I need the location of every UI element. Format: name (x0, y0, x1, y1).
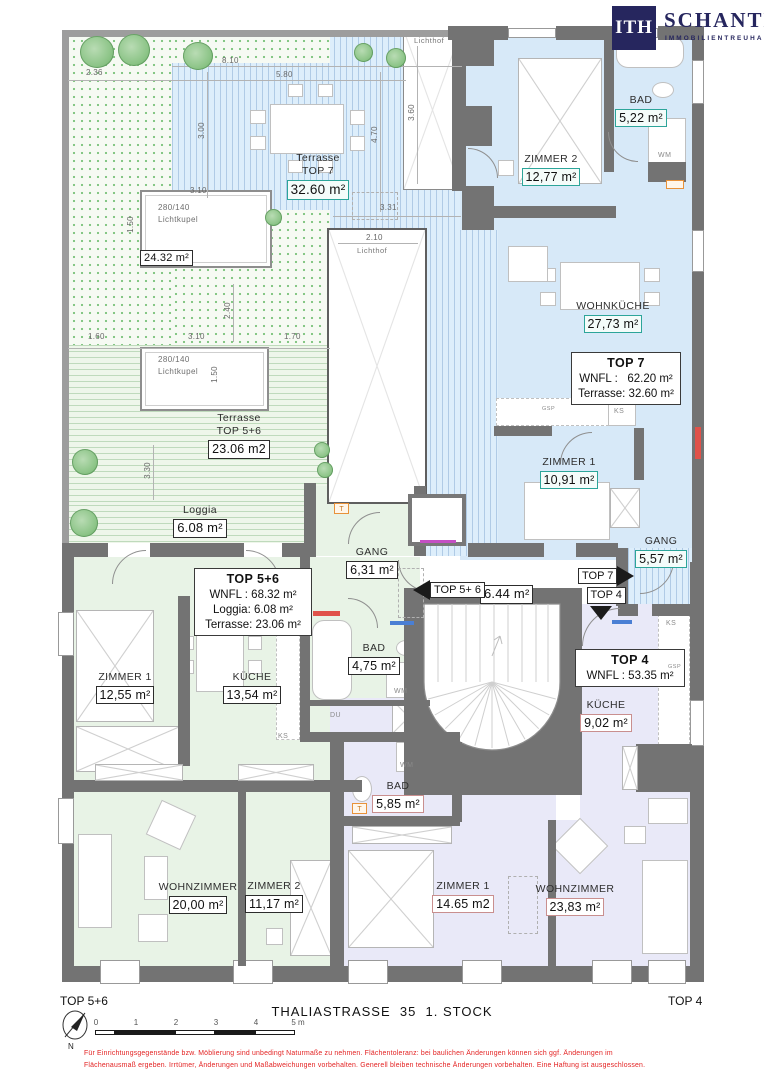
room-name: WOHNKÜCHE (553, 300, 673, 313)
dim-300: 3.00 (197, 122, 206, 139)
room-label-zimmer1-4: ZIMMER 1 14.65 m2 (408, 880, 518, 913)
room-name: ZIMMER 2 (496, 153, 606, 166)
wall-loggia-1 (62, 543, 108, 557)
terrace-chair (318, 84, 333, 97)
unit-info-top7: TOP 7 WNFL : 62.20 m² Terrasse: 32.60 m² (571, 352, 681, 405)
wall-gang7-entry-2 (652, 604, 692, 616)
sofa-wohnzimmer56 (78, 834, 112, 928)
ks-label-top7: KS (614, 408, 624, 415)
room-area: 4,75 m² (348, 657, 400, 675)
terrace-wall-left (62, 30, 69, 543)
room-label-wohnkueche7: WOHNKÜCHE 27,73 m² (553, 300, 673, 333)
room-label-gang7: GANG 5,57 m² (621, 535, 701, 568)
scale-bar: 0 1 2 3 4 5 m (95, 1018, 315, 1038)
dim-150b: 1.50 (210, 366, 219, 383)
dim-line (233, 284, 234, 342)
wall-pier-3 (462, 186, 494, 230)
room-name: GANG (621, 535, 701, 548)
dim-160: 1.60 (88, 332, 105, 341)
unit-wnfl: WNFL : 62.20 m² (576, 372, 676, 387)
dim-310b: 3.10 (188, 332, 205, 341)
dim-360: 3.60 (407, 104, 416, 121)
dim-470: 4.70 (370, 126, 379, 143)
room-name: BAD (334, 642, 414, 655)
unit-title: TOP 7 (607, 356, 645, 370)
dim-line (207, 72, 208, 198)
dim-240: 2.40 (223, 302, 232, 319)
dim-310a: 3.10 (190, 186, 207, 195)
scale-tick: 3 (206, 1018, 226, 1027)
door-mark-magenta (420, 540, 456, 543)
lichtkupel-lower-label: 280/140 Lichtkupel (158, 354, 198, 378)
tree (265, 209, 282, 226)
room-name: KÜCHE (207, 671, 297, 684)
lichthof-mid-shaft (327, 228, 427, 504)
room-name: BAD (358, 780, 438, 793)
wall-right-3 (692, 272, 704, 426)
wall-top-2 (556, 26, 614, 40)
room-area: 27,73 m² (584, 315, 643, 333)
scale-tick: 4 (246, 1018, 266, 1027)
room-area: 23.06 m2 (208, 440, 270, 458)
bed-zimmer1-top7 (524, 482, 610, 540)
unit-title: TOP 5+6 (227, 572, 280, 586)
kupel-name: Lichtkupel (158, 366, 198, 378)
room-area: 32.60 m² (287, 180, 350, 200)
room-name: ZIMMER 1 (70, 671, 180, 684)
nightstand (266, 928, 283, 945)
room-label-gang56: GANG 6,31 m² (332, 546, 412, 579)
room-sub: TOP 5+6 (179, 425, 299, 438)
dim-line (380, 72, 381, 212)
arrow-right-icon (617, 566, 634, 586)
kupel-size: 280/140 (158, 354, 198, 366)
heater-marker (666, 180, 684, 189)
room-name: Terrasse (179, 412, 299, 425)
scale-segment (115, 1030, 135, 1035)
scale-tick: 1 (126, 1018, 146, 1027)
wall-zimmer2-bottom (494, 206, 616, 218)
room-sub: TOP 7 (258, 165, 378, 178)
dim-330: 3.30 (143, 462, 152, 479)
wall-corridor-top-2 (576, 543, 618, 557)
room-name: KÜCHE (561, 699, 651, 712)
window (592, 960, 632, 984)
terrace-chair (350, 110, 365, 125)
tree (70, 509, 98, 537)
elevator-shaft (408, 494, 466, 546)
room-area: 6,31 m² (346, 561, 398, 579)
wall-kitchen7 (494, 426, 552, 436)
du-label-top4: DU (330, 712, 341, 719)
tree (314, 442, 330, 458)
unit-wnfl: WNFL : 68.32 m² (199, 588, 307, 603)
tree (386, 48, 406, 68)
wall-pier-2 (464, 106, 492, 146)
arrow-down-icon (590, 606, 612, 620)
closet-zimmer1-top4 (352, 826, 452, 844)
room-label-bad56: BAD 4,75 m² (334, 642, 414, 675)
room-area: 5,57 m² (635, 550, 687, 568)
terrace-chair (250, 110, 266, 124)
tree (317, 462, 333, 478)
wall-bad4-top (300, 732, 460, 742)
room-area: 5,85 m² (372, 795, 424, 813)
gsp-label-top7: GSP (542, 406, 555, 412)
room-name: ZIMMER 1 (408, 880, 518, 893)
dim-331: 3.31 (380, 203, 397, 212)
room-label-zimmer2-56: ZIMMER 2 11,17 m² (229, 880, 319, 913)
room-name: Terrasse (258, 152, 378, 165)
room-area: 10,91 m² (540, 471, 599, 489)
room-label-zimmer1-56: ZIMMER 1 12,55 m² (70, 671, 180, 704)
wall-right-6 (690, 746, 704, 982)
room-label-bad4: BAD 5,85 m² (358, 780, 438, 813)
dim-line (417, 46, 418, 184)
unit-loggia: Loggia: 6.08 m² (199, 603, 307, 618)
dim-150a: 1.50 (126, 216, 135, 233)
window (692, 60, 704, 104)
wall-bad7-block (648, 162, 686, 182)
room-area: 6.08 m² (173, 519, 226, 538)
room-name: GANG (332, 546, 412, 559)
window (348, 960, 388, 984)
terrace-table (270, 104, 344, 154)
room-area: 9,02 m² (580, 714, 632, 732)
lichthof-top-label: Lichthof (414, 36, 444, 45)
wall-right-5 (690, 562, 704, 700)
unit-terrasse: Terrasse: 23.06 m² (199, 618, 307, 633)
bed-zimmer1-top56 (76, 610, 154, 722)
technic-marker: T (334, 503, 349, 514)
room-area: 12,55 m² (96, 686, 155, 704)
dim-170: 1.70 (284, 332, 301, 341)
dim-580: 5.80 (276, 70, 293, 79)
dim-line-210 (338, 243, 418, 244)
wall-wz56-z256 (238, 792, 246, 966)
tree (183, 42, 213, 70)
unit-terrasse: Terrasse: 32.60 m² (576, 387, 676, 402)
dim-210: 2.10 (366, 233, 383, 242)
room-area: 14.65 m2 (432, 895, 494, 913)
dim-line (68, 80, 172, 81)
closet-in-wall-2 (238, 764, 314, 781)
tree (354, 43, 373, 62)
plan-title: THALIASTRASSE 35 1. STOCK (0, 1004, 764, 1019)
tree (80, 36, 114, 68)
terrace-wall-top (62, 30, 464, 37)
tree (118, 34, 150, 66)
lichtkupel-upper-label: 280/140 Lichtkupel (158, 202, 198, 226)
closet-in-wall-1 (95, 764, 183, 781)
side-table-top4 (624, 826, 646, 844)
wall-unit-top4 (642, 860, 688, 954)
disclaimer-text: Für Einrichtungsgegenstände bzw. Möblier… (84, 1048, 724, 1073)
wall-du-top (304, 700, 430, 706)
scale-segment (175, 1030, 215, 1035)
wall-chimney-top4 (636, 744, 692, 792)
arrow-left-icon (413, 580, 430, 600)
wm-label-top4: WM (400, 762, 413, 769)
room-name: BAD (601, 94, 681, 107)
sideboard (138, 914, 168, 942)
scale-segment (135, 1030, 175, 1035)
sideboard-top4 (648, 798, 688, 824)
window (508, 28, 556, 38)
room-area: 5,22 m² (615, 109, 667, 127)
wall-zimmer1-4-top (334, 816, 460, 826)
wall-corridor-top-1 (468, 543, 544, 557)
lichthof-mid-label: Lichthof (357, 246, 387, 255)
dim-810: 8.10 (222, 56, 239, 65)
door-mark-red2 (313, 611, 340, 616)
door-arc (112, 550, 146, 584)
ks-label-top56: KS (278, 733, 288, 740)
scale-segment (215, 1030, 255, 1035)
ith-logo-icon: ITH (612, 6, 656, 50)
stair-hall-area: 6.44 m² (480, 583, 533, 604)
terrace-chair (250, 136, 266, 150)
wm-label-top7: WM (658, 152, 671, 159)
wall-top56-top4 (330, 740, 344, 966)
scale-segment (255, 1030, 295, 1035)
room-area: 13,54 m² (223, 686, 282, 704)
kupel-area-box: 24.32 m² (140, 250, 193, 266)
door-mark-blue (390, 621, 414, 625)
kupel-size: 280/140 (158, 202, 198, 214)
room-area: 12,77 m² (522, 168, 581, 186)
room-area: 23,83 m² (546, 898, 605, 916)
door-mark-red (695, 427, 701, 459)
sideboard (508, 246, 548, 282)
terrace-chair (288, 84, 303, 97)
wall-vestibule-left (304, 483, 316, 557)
room-label-terrasse56: Terrasse TOP 5+6 23.06 m2 (179, 412, 299, 459)
room-label-kueche56: KÜCHE 13,54 m² (207, 671, 297, 704)
window (58, 798, 74, 844)
kupel-name: Lichtkupel (158, 214, 198, 226)
dim-line (172, 66, 462, 67)
ks-label-top4: KS (666, 620, 676, 627)
unit-wnfl: WNFL : 53.35 m² (580, 669, 680, 684)
room-label-kueche4: KÜCHE 9,02 m² (561, 699, 651, 732)
room-label-loggia: Loggia 6.08 m² (150, 504, 250, 538)
room-name: ZIMMER 1 (514, 456, 624, 469)
nav-label-top4: TOP 4 (587, 587, 626, 604)
scale-segment (95, 1030, 115, 1035)
chimney-shaft (622, 746, 638, 790)
wall-pier-1 (462, 30, 494, 66)
brand-subtitle: IMMOBILIENTREUHAND (665, 35, 764, 42)
dim-line (68, 348, 330, 349)
dim-line (153, 445, 154, 500)
room-label-bad7: BAD 5,22 m² (601, 94, 681, 127)
window (690, 700, 704, 746)
room-area: 11,17 m² (245, 895, 303, 913)
window (462, 960, 502, 984)
t-label: T (339, 506, 343, 513)
room-label-terrasse7: Terrasse TOP 7 32.60 m² (258, 152, 378, 200)
wall-bad4-right (452, 742, 462, 822)
spiral-staircase (410, 596, 574, 768)
stair-hall-area-box: 6.44 m² (480, 585, 533, 604)
unit-title: TOP 4 (611, 653, 649, 667)
window (100, 960, 140, 984)
dim-line (333, 216, 461, 217)
wall-loggia-2 (150, 543, 244, 557)
tree (72, 449, 98, 475)
window (692, 230, 704, 272)
brand-name: SCHANTL (664, 8, 764, 33)
window (58, 612, 74, 656)
closet-gang7 (610, 488, 640, 528)
scale-tick: 5 m (288, 1018, 308, 1027)
nav-arrow-top56: TOP 5+ 6 (413, 580, 485, 600)
room-label-wohnzimmer4: WOHNZIMMER 23,83 m² (515, 883, 635, 916)
chair (248, 636, 262, 650)
room-label-zimmer2-7: ZIMMER 2 12,77 m² (496, 153, 606, 186)
unit-info-top56: TOP 5+6 WNFL : 68.32 m² Loggia: 6.08 m² … (194, 568, 312, 636)
floor-plan: 280/140 Lichtkupel 280/140 Lichtkupel Li… (0, 0, 764, 1080)
wall-wohnzimmer56-top (62, 780, 362, 792)
wall-right-2 (692, 104, 704, 230)
room-name: Loggia (150, 504, 250, 517)
terrace-chair (350, 136, 365, 151)
nav-label-top7: TOP 7 (578, 568, 617, 585)
wm-label-top56: WM (394, 688, 407, 695)
window (648, 960, 686, 984)
gsp-label-top4: GSP (668, 664, 681, 670)
room-name: WOHNZIMMER (515, 883, 635, 896)
room-label-zimmer1-7: ZIMMER 1 10,91 m² (514, 456, 624, 489)
room-area: 20,00 m² (169, 896, 228, 914)
compass-north-label: N (68, 1042, 74, 1051)
scale-tick: 0 (86, 1018, 106, 1027)
nav-label-top56: TOP 5+ 6 (430, 582, 485, 599)
chair (644, 268, 660, 282)
scale-tick: 2 (166, 1018, 186, 1027)
nav-arrows-top7-top4: TOP 7 TOP 4 (578, 566, 634, 620)
dim-236: 2.36 (86, 68, 103, 77)
wall-zimmer1-gang7 (634, 428, 644, 480)
room-name: ZIMMER 2 (229, 880, 319, 893)
